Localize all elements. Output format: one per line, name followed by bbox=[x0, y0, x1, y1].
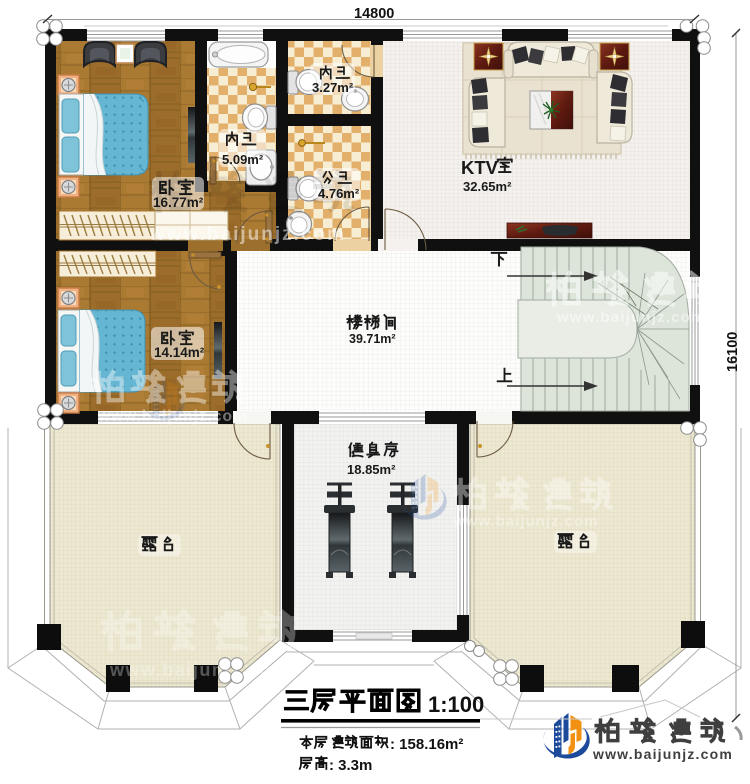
svg-text:www.baijunjz.com: www.baijunjz.com bbox=[109, 660, 289, 680]
svg-text:5.09m²: 5.09m² bbox=[222, 152, 264, 167]
svg-text:32.65m²: 32.65m² bbox=[463, 179, 512, 194]
svg-text:: 158.16m²: : 158.16m² bbox=[390, 736, 463, 753]
svg-text:39.71m²: 39.71m² bbox=[349, 332, 396, 346]
svg-text:16100: 16100 bbox=[725, 332, 741, 372]
svg-text:14800: 14800 bbox=[354, 6, 394, 22]
svg-text:: 3.3m: : 3.3m bbox=[329, 757, 372, 774]
svg-text:www.baijunjz.com: www.baijunjz.com bbox=[556, 309, 706, 326]
svg-text:www.baijunjz.com: www.baijunjz.com bbox=[592, 746, 733, 762]
svg-text:www.baijunjz.com: www.baijunjz.com bbox=[452, 513, 598, 530]
svg-text:1:100: 1:100 bbox=[428, 692, 484, 717]
svg-text:KTV: KTV bbox=[461, 157, 499, 178]
svg-text:www.baijunjz.com: www.baijunjz.com bbox=[149, 224, 346, 245]
svg-text:3.27m²: 3.27m² bbox=[312, 80, 354, 95]
svg-text:www.baijunjz.com: www.baijunjz.com bbox=[97, 408, 248, 425]
svg-text:14.14m²: 14.14m² bbox=[154, 345, 205, 360]
svg-text:18.85m²: 18.85m² bbox=[347, 462, 396, 477]
